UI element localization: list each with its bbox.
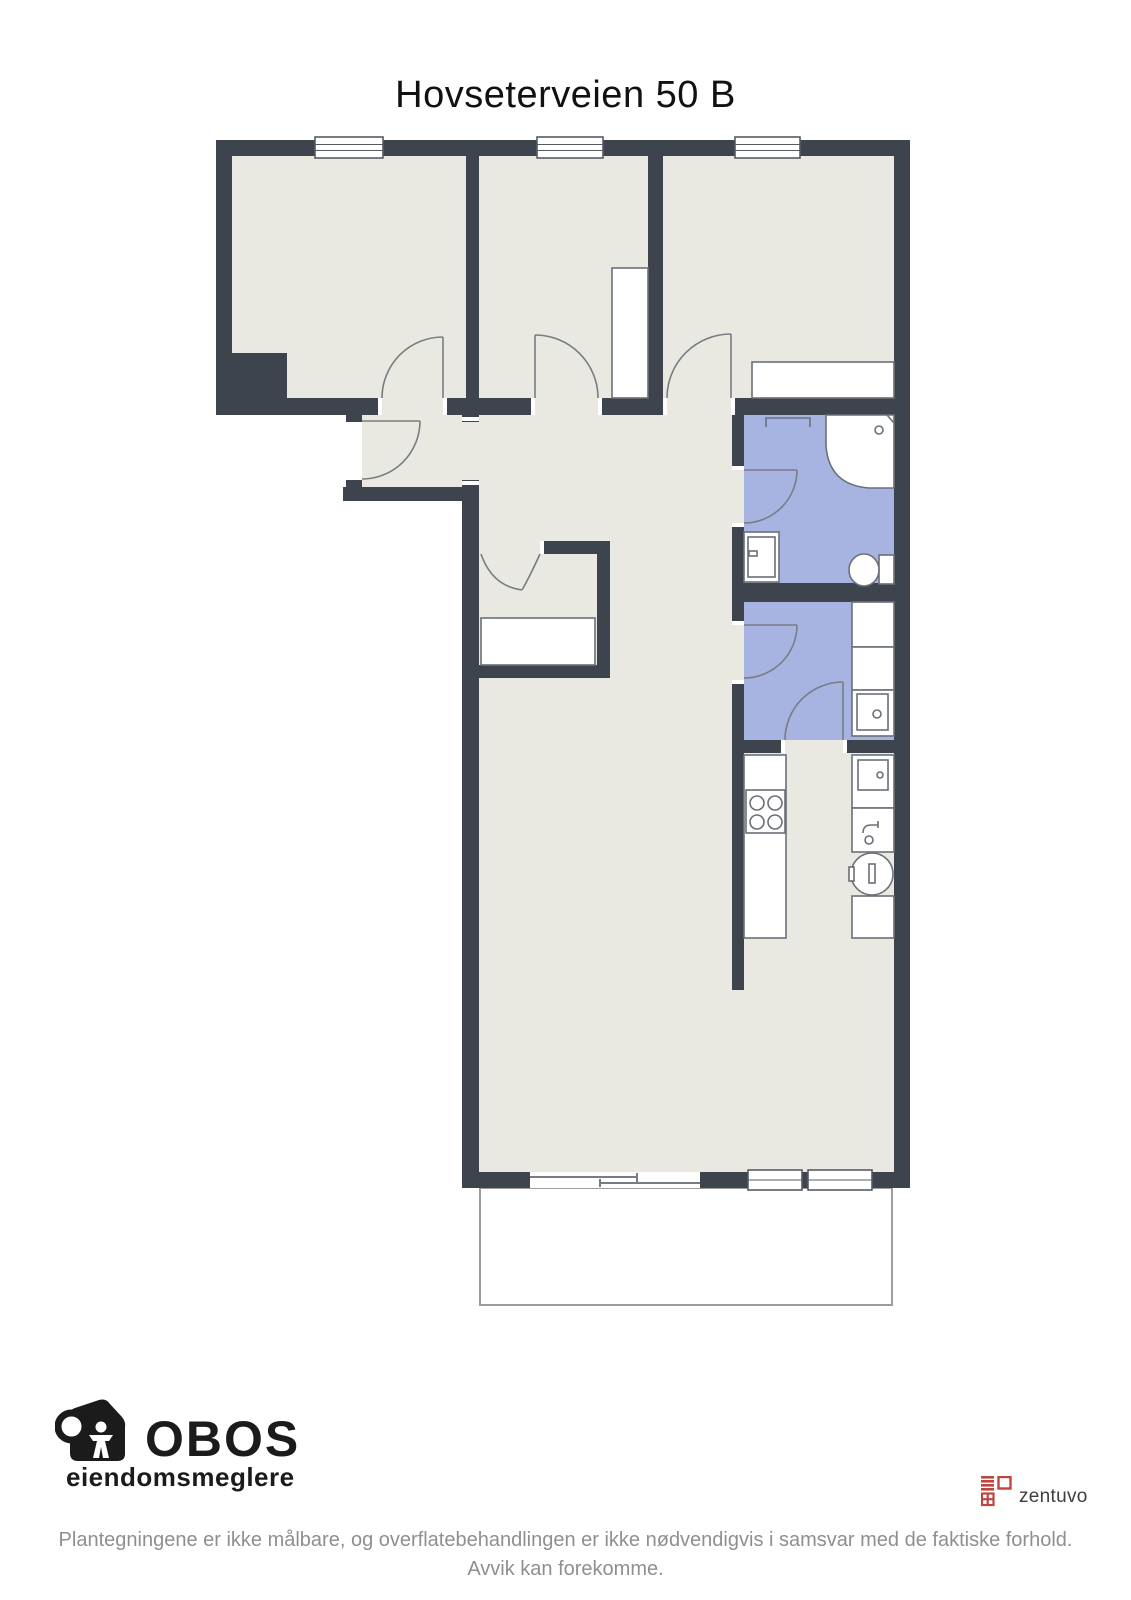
kitchen-counter-right xyxy=(852,896,894,938)
bathroom-sink xyxy=(744,532,779,582)
disclaimer-line-2: Avvik kan forekomme. xyxy=(0,1555,1131,1584)
sliding-door xyxy=(530,1172,700,1188)
toilet-bowl xyxy=(849,554,879,586)
window xyxy=(537,137,603,158)
disclaimer-line-1: Plantegningene er ikke målbare, og overf… xyxy=(0,1526,1131,1555)
laundry-counter xyxy=(852,647,894,690)
obos-house-icon xyxy=(55,1396,135,1466)
obos-wordmark: OBOS xyxy=(145,1410,300,1468)
disclaimer: Plantegningene er ikke målbare, og overf… xyxy=(0,1526,1131,1584)
wardrobe xyxy=(612,268,648,398)
window xyxy=(748,1170,802,1190)
obos-logo: OBOS eiendomsmeglere xyxy=(55,1396,315,1506)
zentuvo-icon xyxy=(981,1476,1013,1508)
sideboard xyxy=(752,362,894,398)
kitchen-counter-left xyxy=(744,755,786,938)
obos-subtitle: eiendomsmeglere xyxy=(66,1462,295,1493)
floor-plan-page: Hovseterveien 50 B xyxy=(0,0,1131,1600)
window xyxy=(808,1170,872,1190)
balcony xyxy=(480,1188,892,1305)
laundry-counter xyxy=(852,602,894,647)
kitchen-faucet-unit xyxy=(852,808,894,852)
floor-plan xyxy=(0,0,1131,1600)
hall-closet xyxy=(481,618,595,665)
sink-handle xyxy=(749,551,757,556)
room-balcony xyxy=(480,1188,892,1305)
toilet-tank xyxy=(879,555,894,584)
window xyxy=(735,137,800,158)
zentuvo-wordmark: zentuvo xyxy=(1019,1486,1088,1508)
window xyxy=(315,137,383,158)
